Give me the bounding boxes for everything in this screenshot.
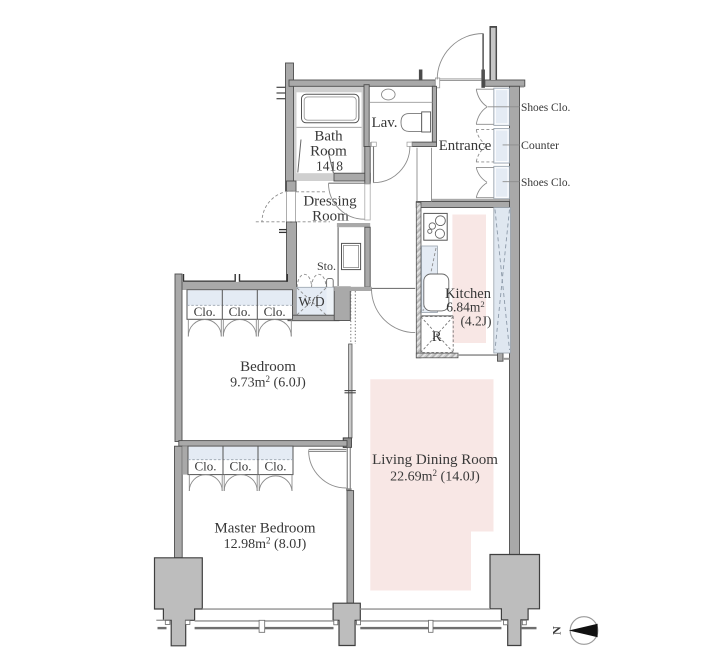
svg-text:Bedroom: Bedroom: [240, 359, 296, 375]
svg-text:Master Bedroom: Master Bedroom: [214, 521, 316, 537]
svg-text:Sto.: Sto.: [317, 259, 336, 273]
svg-text:N: N: [550, 626, 564, 635]
svg-text:W/D: W/D: [298, 294, 324, 309]
svg-text:Clo.: Clo.: [229, 459, 251, 474]
svg-text:Clo.: Clo.: [264, 459, 286, 474]
svg-text:Bath: Bath: [314, 129, 343, 145]
svg-text:(4.2J): (4.2J): [460, 314, 491, 329]
svg-text:Clo.: Clo.: [194, 304, 216, 319]
svg-text:6.84m2: 6.84m2: [446, 299, 484, 314]
svg-text:Clo.: Clo.: [264, 304, 286, 319]
svg-text:Clo.: Clo.: [229, 304, 251, 319]
svg-text:Clo.: Clo.: [194, 459, 216, 474]
svg-text:Lav.: Lav.: [371, 115, 397, 131]
svg-text:Entrance: Entrance: [439, 138, 492, 154]
svg-text:Shoes Clo.: Shoes Clo.: [521, 177, 571, 189]
svg-text:12.98m2 (8.0J): 12.98m2 (8.0J): [224, 536, 307, 553]
svg-text:R: R: [432, 329, 442, 345]
svg-text:Shoes Clo.: Shoes Clo.: [521, 102, 571, 114]
svg-text:Room: Room: [312, 209, 349, 225]
svg-text:Room: Room: [310, 144, 347, 160]
svg-text:1418: 1418: [316, 159, 343, 174]
svg-text:Counter: Counter: [521, 138, 559, 152]
svg-text:Living Dining Room: Living Dining Room: [372, 452, 498, 468]
